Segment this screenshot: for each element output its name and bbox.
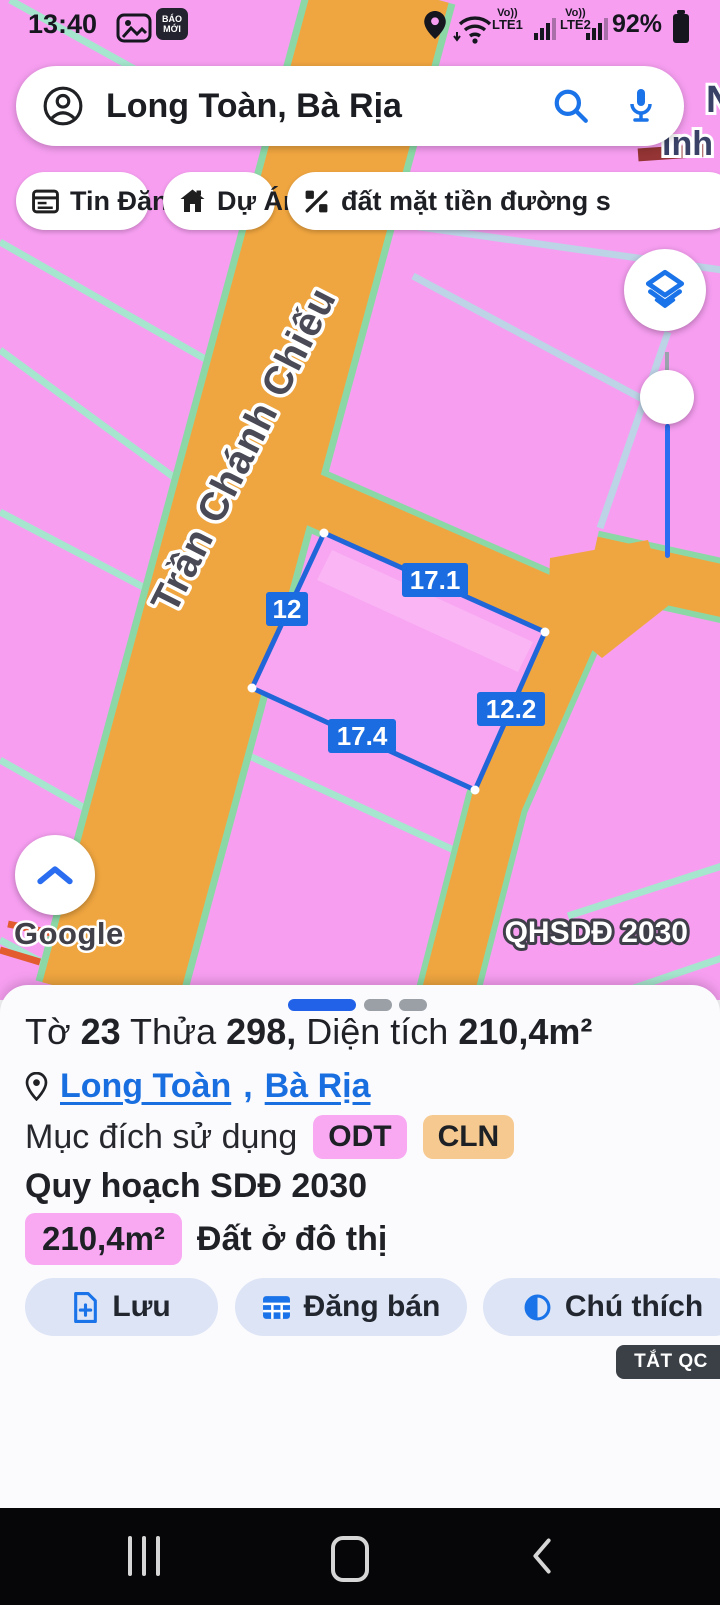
badge-cln: CLN — [423, 1115, 515, 1159]
map-layers-button[interactable] — [624, 249, 706, 331]
location-active-icon — [424, 11, 446, 39]
dim-bottom: 17.4 — [337, 721, 388, 751]
chip-label: đất mặt tiền đường s — [341, 186, 611, 217]
volte-lte1-label: Vo)) LTE1 — [492, 7, 523, 31]
plan-year-badge: QHSDĐ 2030 — [505, 916, 688, 949]
search-bar[interactable]: Long Toàn, Bà Rịa — [16, 66, 684, 146]
battery-percent: 92% — [612, 10, 662, 39]
expand-sheet-button[interactable] — [15, 835, 95, 915]
layers-icon — [642, 267, 688, 313]
zoom-slider-track-top — [665, 352, 669, 370]
sheet-page-indicator[interactable] — [399, 999, 427, 1011]
location-row: Long Toàn, Bà Rịa — [25, 1067, 371, 1106]
mic-icon[interactable] — [624, 87, 658, 125]
badge-odt: ODT — [313, 1115, 406, 1159]
account-icon[interactable] — [42, 85, 84, 127]
nav-home-button[interactable] — [331, 1536, 369, 1582]
chevron-up-icon — [36, 864, 74, 886]
nav-back-button[interactable] — [532, 1536, 552, 1576]
search-input[interactable]: Long Toàn, Bà Rịa — [106, 87, 552, 126]
search-icon[interactable] — [552, 87, 590, 125]
battery-icon — [672, 10, 690, 44]
legend-button[interactable]: Chú thích — [483, 1278, 720, 1336]
purpose-label: Mục đích sử dụng — [25, 1118, 297, 1157]
area-row: 210,4m² Đất ở đô thị — [25, 1213, 387, 1265]
parcel-info-sheet: Tờ 23 Thửa 298, Diện tích 210,4m² Long T… — [0, 985, 720, 1508]
post-listing-button[interactable]: Đăng bán — [235, 1278, 467, 1336]
wifi-icon — [452, 10, 492, 44]
zoom-slider-handle[interactable] — [640, 370, 694, 424]
sheet-page-indicator[interactable] — [364, 999, 392, 1011]
phone-screen: { "status_bar": { "time": "13:40", "baom… — [0, 0, 720, 1605]
news-feed-icon — [32, 189, 59, 214]
land-type-text: Đất ở đô thị — [197, 1220, 387, 1259]
parcel-title: Tờ 23 Thửa 298, Diện tích 210,4m² — [25, 1011, 592, 1053]
save-button[interactable]: Lưu — [25, 1278, 218, 1336]
signal-bars-1-icon — [534, 16, 560, 40]
dismiss-ad-button[interactable]: TẮT QC — [616, 1345, 720, 1379]
gallery-notification-icon — [116, 12, 152, 44]
baomoi-app-icon: BÁOMỚI — [156, 8, 188, 40]
clock: 13:40 — [28, 9, 97, 40]
zoom-slider-track[interactable] — [665, 424, 670, 558]
crossed-tools-icon — [303, 188, 330, 215]
status-bar: 13:40 BÁOMỚI Vo)) LTE1 Vo)) LTE2 92% — [0, 0, 720, 56]
dim-left: 12 — [273, 594, 302, 624]
chip-dat-mat-tien[interactable]: đất mặt tiền đường s — [287, 172, 720, 230]
ward-link[interactable]: Long Toàn — [60, 1067, 231, 1106]
city-link[interactable]: Bà Rịa — [265, 1067, 371, 1106]
dim-right: 12.2 — [486, 694, 537, 724]
listing-calendar-icon — [262, 1294, 291, 1321]
house-icon — [179, 188, 206, 214]
plan-line: Quy hoạch SDĐ 2030 — [25, 1167, 367, 1206]
dim-top: 17.1 — [410, 565, 461, 595]
contrast-circle-icon — [523, 1293, 552, 1322]
nav-recents-button[interactable] — [128, 1536, 160, 1576]
signal-bars-2-icon — [586, 16, 612, 40]
save-doc-icon — [72, 1292, 99, 1323]
area-badge: 210,4m² — [25, 1213, 182, 1265]
map-canvas[interactable]: 17.1 12 12.2 17.4 Trần Chánh Chiếu N inh… — [0, 0, 720, 1000]
chip-du-an[interactable]: Dự Án — [163, 172, 275, 230]
pin-icon — [25, 1072, 48, 1101]
android-nav-bar — [0, 1508, 720, 1605]
svg-text:N: N — [706, 79, 720, 121]
sheet-page-indicator-active[interactable] — [288, 999, 356, 1011]
purpose-row: Mục đích sử dụng ODT CLN — [25, 1115, 514, 1159]
google-watermark: Google — [14, 916, 124, 951]
chip-tin-dang[interactable]: Tin Đăng — [16, 172, 149, 230]
